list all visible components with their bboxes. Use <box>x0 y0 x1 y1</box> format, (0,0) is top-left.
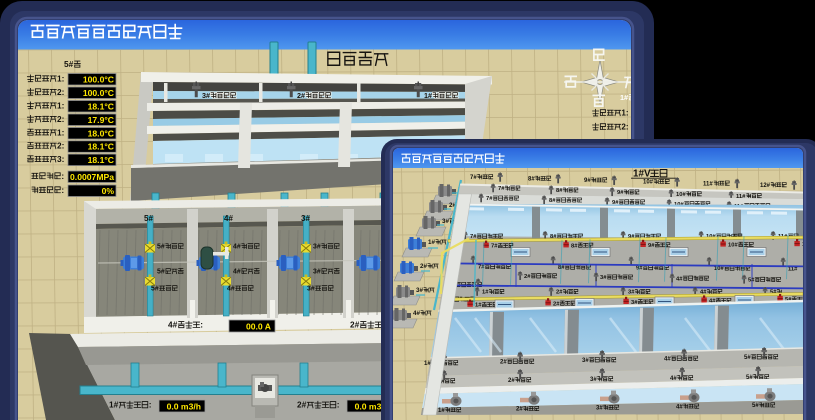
svg-text:2#: 2# <box>350 320 360 330</box>
svg-text:4#: 4# <box>676 276 683 282</box>
svg-text:5#: 5# <box>151 286 159 293</box>
svg-text:5#: 5# <box>144 214 153 223</box>
svg-text:18.1°C: 18.1°C <box>88 101 114 111</box>
svg-text:5#: 5# <box>157 244 165 251</box>
svg-text:100.0°C: 100.0°C <box>83 88 114 98</box>
svg-text:7#: 7# <box>478 265 485 271</box>
svg-text:5#: 5# <box>157 269 165 276</box>
svg-text:1#: 1# <box>424 361 431 367</box>
svg-text:9#: 9# <box>636 266 643 272</box>
svg-text:00.0 A: 00.0 A <box>246 322 271 332</box>
svg-text:10#: 10# <box>676 192 686 198</box>
svg-text:2#: 2# <box>553 301 560 307</box>
svg-text:5#: 5# <box>748 277 755 283</box>
svg-text::: : <box>200 320 203 330</box>
svg-text:1#: 1# <box>428 239 436 246</box>
svg-text:3#: 3# <box>628 290 635 296</box>
svg-text:2#: 2# <box>297 400 307 410</box>
svg-text:7#: 7# <box>498 186 505 192</box>
svg-text:2#: 2# <box>516 407 523 413</box>
svg-text:1#: 1# <box>424 91 432 100</box>
svg-text:100.0°C: 100.0°C <box>83 74 114 84</box>
svg-text:1:: 1: <box>57 73 64 83</box>
svg-text:3#: 3# <box>202 91 210 100</box>
svg-text:1#: 1# <box>620 93 628 102</box>
svg-text:9#: 9# <box>648 243 655 249</box>
svg-text:8#: 8# <box>571 243 578 249</box>
svg-text:18.0°C: 18.0°C <box>88 128 114 138</box>
svg-text:0%: 0% <box>102 186 115 196</box>
svg-text:3#: 3# <box>582 358 589 364</box>
svg-text:3#: 3# <box>416 287 424 294</box>
svg-text:9#: 9# <box>617 190 624 196</box>
svg-text:7#: 7# <box>470 175 477 181</box>
svg-text:2#: 2# <box>420 263 428 270</box>
svg-text:0.0 m3/h: 0.0 m3/h <box>167 402 201 412</box>
svg-text:3#: 3# <box>442 218 450 225</box>
svg-text:17.9°C: 17.9°C <box>88 115 114 125</box>
svg-text:10#: 10# <box>714 266 724 272</box>
svg-text::: : <box>337 400 340 410</box>
svg-text:2:: 2: <box>57 141 64 151</box>
svg-text:8#: 8# <box>558 265 565 271</box>
svg-text:4#: 4# <box>233 244 241 251</box>
svg-text::: : <box>61 185 64 195</box>
svg-text:8#: 8# <box>556 188 563 194</box>
svg-text:10#: 10# <box>728 242 738 248</box>
svg-text:3#: 3# <box>307 286 315 293</box>
svg-text:4#: 4# <box>224 214 233 223</box>
svg-text:1#: 1# <box>475 303 482 309</box>
svg-text:7#: 7# <box>486 196 493 202</box>
svg-text:4#: 4# <box>670 376 677 382</box>
svg-text:4#: 4# <box>676 404 683 410</box>
svg-text:1#: 1# <box>109 400 119 410</box>
svg-text:2:: 2: <box>57 87 64 97</box>
svg-text:4#: 4# <box>664 356 671 362</box>
svg-text:4#: 4# <box>413 310 421 317</box>
svg-text:3#: 3# <box>596 405 603 411</box>
svg-text:9#: 9# <box>584 178 591 184</box>
svg-text:3#: 3# <box>590 377 597 383</box>
svg-text:3#: 3# <box>313 244 321 251</box>
svg-text:2#: 2# <box>297 91 305 100</box>
svg-text:1#: 1# <box>438 408 445 414</box>
svg-text:1#: 1# <box>482 290 489 296</box>
svg-text:18.1°C: 18.1°C <box>88 155 114 165</box>
svg-text:4#: 4# <box>233 269 241 276</box>
svg-text:3:: 3: <box>57 154 64 164</box>
svg-text:2:: 2: <box>621 122 628 131</box>
svg-text:4#: 4# <box>168 320 178 330</box>
svg-text:11#: 11# <box>788 267 798 273</box>
svg-text:3#: 3# <box>301 214 310 223</box>
svg-text:2#: 2# <box>508 378 515 384</box>
svg-text::: : <box>149 400 152 410</box>
svg-text:4#: 4# <box>227 286 235 293</box>
svg-text:3#: 3# <box>600 275 607 281</box>
svg-text:3#: 3# <box>313 269 321 276</box>
svg-text:2#: 2# <box>556 290 563 296</box>
svg-text:2#: 2# <box>500 359 507 365</box>
svg-text:2:: 2: <box>57 114 64 124</box>
svg-text:5#: 5# <box>744 355 751 361</box>
svg-text:2#: 2# <box>524 274 531 280</box>
svg-text:8#: 8# <box>549 198 556 204</box>
svg-text:10#: 10# <box>643 180 654 186</box>
svg-text:1:: 1: <box>57 127 64 137</box>
svg-text:11#: 11# <box>703 181 713 187</box>
svg-text:1:: 1: <box>621 108 628 117</box>
svg-text:5#: 5# <box>64 59 74 69</box>
svg-text:5#: 5# <box>752 403 759 409</box>
svg-text::: : <box>61 171 64 181</box>
svg-text:7#: 7# <box>491 244 498 250</box>
svg-text:1:: 1: <box>57 100 64 110</box>
svg-text:8#: 8# <box>528 176 535 182</box>
svg-text:12#: 12# <box>760 183 771 189</box>
svg-text:0.0007MPa: 0.0007MPa <box>70 172 114 182</box>
svg-text:18.1°C: 18.1°C <box>88 142 114 152</box>
